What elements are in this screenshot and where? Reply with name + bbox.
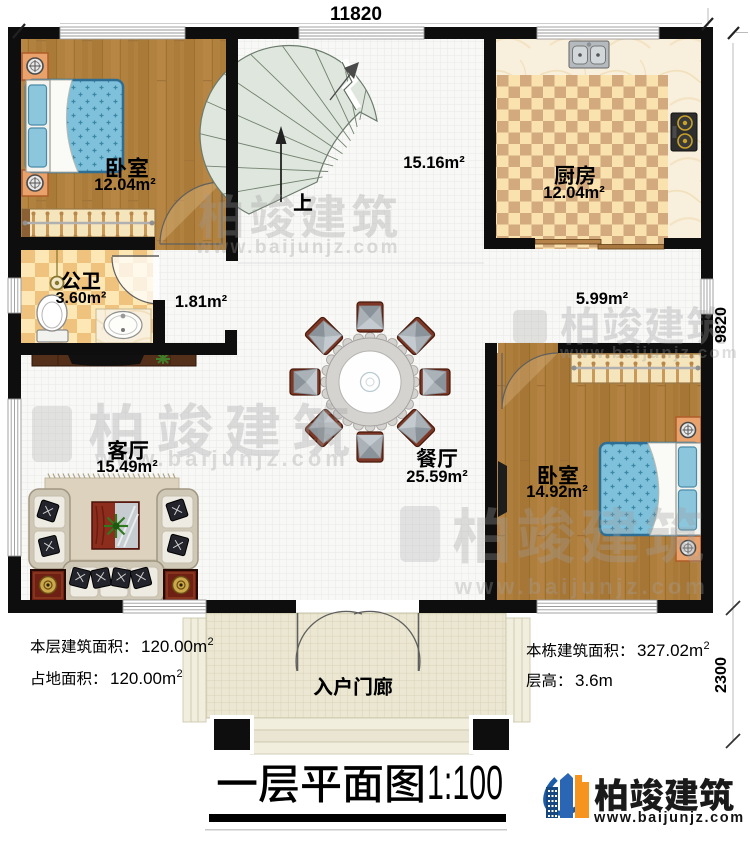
svg-text:12.04m²: 12.04m² — [543, 184, 605, 202]
svg-text:120.00m: 120.00m — [141, 637, 207, 656]
svg-text:2: 2 — [208, 636, 214, 648]
svg-text:2: 2 — [177, 668, 183, 680]
svg-text:15.49m²: 15.49m² — [96, 458, 158, 476]
svg-text:1:100: 1:100 — [427, 757, 503, 810]
svg-text:www.baijunjz.com: www.baijunjz.com — [195, 237, 400, 258]
svg-text:2300: 2300 — [713, 657, 730, 693]
svg-text:5.99m²: 5.99m² — [576, 290, 629, 308]
svg-text:3.6m: 3.6m — [575, 671, 613, 690]
svg-text:12.04m²: 12.04m² — [94, 176, 156, 194]
svg-text:327.02m: 327.02m — [637, 641, 703, 660]
svg-text:www.baijunjz.com: www.baijunjz.com — [593, 810, 745, 826]
svg-text:1.81m²: 1.81m² — [175, 293, 228, 311]
svg-text:9820: 9820 — [713, 307, 730, 343]
svg-text:25.59m²: 25.59m² — [406, 468, 468, 486]
svg-text:3.60m²: 3.60m² — [56, 290, 107, 307]
svg-text:www.baijunjz.com: www.baijunjz.com — [559, 343, 739, 362]
svg-text:www.baijunjz.com: www.baijunjz.com — [454, 574, 709, 599]
svg-text:14.92m²: 14.92m² — [526, 483, 588, 501]
svg-text:120.00m: 120.00m — [110, 669, 176, 688]
svg-text:2: 2 — [704, 640, 710, 652]
svg-text:11820: 11820 — [330, 4, 382, 25]
svg-text:15.16m²: 15.16m² — [403, 154, 465, 172]
